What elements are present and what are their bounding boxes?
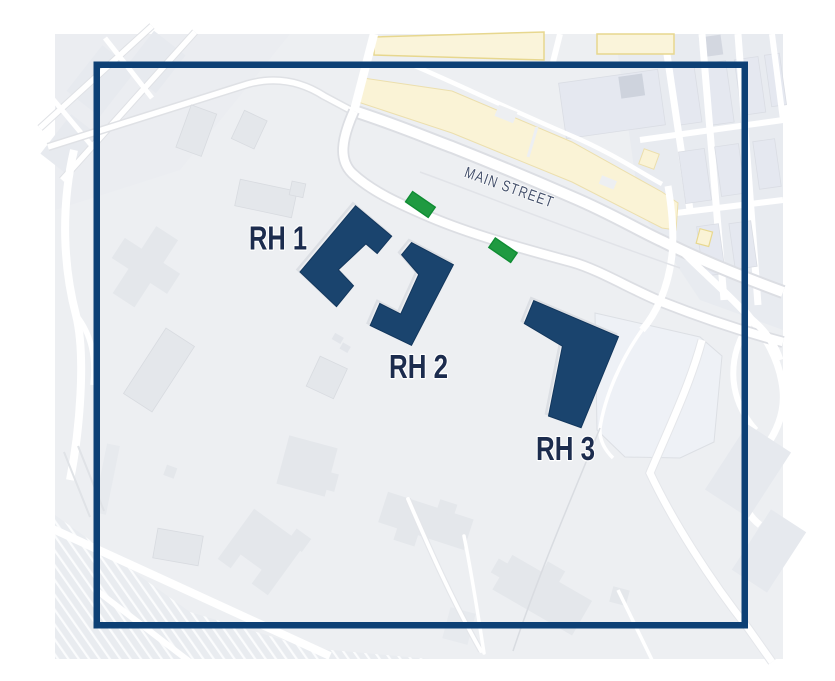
svg-text:RH 2: RH 2 — [389, 349, 448, 386]
svg-text:RH 1: RH 1 — [249, 221, 307, 258]
svg-text:RH 3: RH 3 — [536, 431, 595, 468]
